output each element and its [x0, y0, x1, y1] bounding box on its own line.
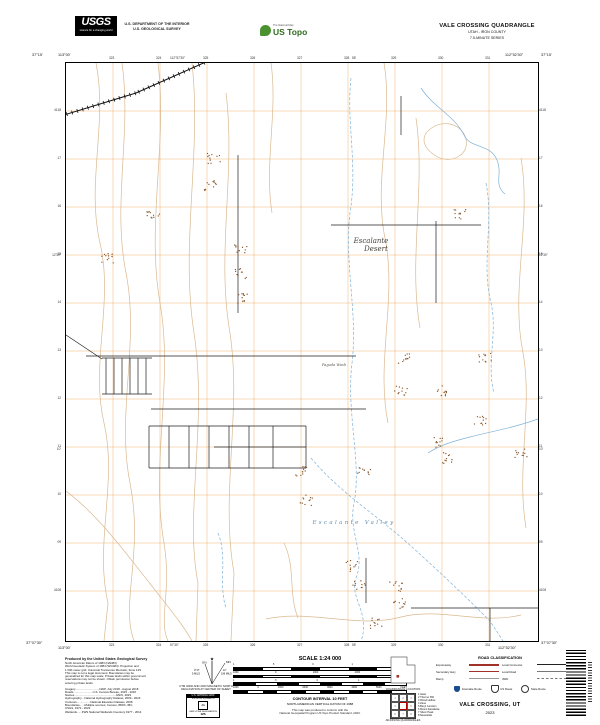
terrain-speck — [435, 442, 436, 443]
terrain-speck — [407, 358, 408, 359]
terrain-speck — [522, 452, 523, 453]
terrain-speck — [403, 359, 404, 360]
railroad-tick — [114, 98, 115, 102]
terrain-speck — [113, 262, 114, 263]
terrain-speck — [296, 475, 297, 476]
map-label: Pagoda Wash — [321, 363, 346, 367]
terrain-speck — [350, 569, 351, 570]
terrain-speck — [491, 359, 492, 360]
adjoining-quad-label: ADJOINING QUADRANGLES — [366, 719, 440, 722]
terrain-speck — [235, 271, 236, 272]
terrain-speck — [442, 462, 443, 463]
terrain-speck — [245, 278, 246, 279]
terrain-speck — [405, 601, 406, 602]
grid-tick-top: 328 — [344, 56, 349, 60]
terrain-speck — [437, 391, 438, 392]
map-label: Desert — [363, 245, 388, 253]
terrain-speck — [239, 269, 240, 270]
grid-tick-right: 13 — [539, 348, 543, 352]
terrain-speck — [241, 297, 242, 298]
graticule-label-top: 55' — [352, 56, 356, 60]
scale-bar-number: 0 — [258, 687, 259, 690]
terrain-speck — [210, 163, 211, 164]
usng-square-id: JG — [198, 701, 208, 710]
terrain-speck — [208, 184, 209, 185]
terrain-speck — [237, 250, 238, 251]
scale-bar-number: 1000 — [233, 687, 239, 690]
adjoining-cell: 8 — [407, 710, 415, 718]
terrain-speck — [349, 565, 350, 566]
terrain-speck — [482, 359, 483, 360]
terrain-speck — [211, 154, 212, 155]
terrain-speck — [401, 606, 402, 607]
terrain-speck — [409, 357, 410, 358]
scale-bar-segment — [320, 683, 342, 685]
graticule-label-bottom: 57'30" — [170, 643, 179, 647]
terrain-speck — [210, 159, 211, 160]
scale-bar-segment — [234, 683, 256, 685]
svg-text:MN: MN — [226, 660, 231, 664]
road-class-sample-expressway — [469, 664, 499, 666]
scale-bar-number: 0 — [275, 672, 276, 675]
grid-tick-left: 16 — [57, 204, 61, 208]
road-class-sample-ramp — [469, 678, 499, 679]
road-classification-legend: ROAD CLASSIFICATION ExpresswayLocal Conn… — [436, 656, 564, 693]
terrain-speck — [404, 604, 405, 605]
terrain-speck — [361, 587, 362, 588]
terrain-speck — [439, 441, 440, 442]
scale-bar-number: 1 — [233, 664, 234, 667]
terrain-speck — [159, 213, 160, 214]
contour-line — [225, 93, 234, 641]
road-class-label: Secondary Hwy — [436, 670, 466, 674]
terrain-speck — [355, 564, 356, 565]
quad-title: VALE CROSSING QUADRANGLE — [392, 23, 582, 29]
terrain-speck — [361, 584, 362, 585]
scale-bar-segment — [349, 691, 363, 693]
terrain-speck — [455, 209, 456, 210]
terrain-speck — [485, 418, 486, 419]
source-line: Wetlands......FWS National Wetlands Inve… — [65, 711, 193, 714]
terrain-speck — [394, 390, 395, 391]
department-heading: U.S. DEPARTMENT OF THE INTERIOR U.S. GEO… — [122, 22, 192, 31]
grid-tick-top: 329 — [391, 56, 396, 60]
terrain-speck — [111, 256, 112, 257]
graticule-label-left: 12'30" — [52, 253, 61, 257]
state-locator-map — [388, 654, 418, 686]
railroad-tick — [119, 96, 120, 100]
terrain-speck — [389, 581, 390, 582]
terrain-speck — [483, 354, 484, 355]
scale-bar-segment — [263, 676, 292, 678]
contour-line — [416, 118, 420, 328]
dept-line1: U.S. DEPARTMENT OF THE INTERIOR — [122, 22, 192, 27]
grid-tick-bottom: 327 — [297, 643, 302, 647]
terrain-speck — [350, 567, 351, 568]
terrain-speck — [438, 389, 439, 390]
terrain-speck — [514, 457, 515, 458]
terrain-speck — [446, 391, 447, 392]
contour-interval: CONTOUR INTERVAL 10 FEET — [233, 697, 407, 701]
terrain-speck — [465, 209, 466, 210]
terrain-speck — [370, 625, 371, 626]
terrain-speck — [364, 469, 365, 470]
terrain-speck — [300, 502, 301, 503]
quad-location-label: QUADRANGLE LOCATION — [366, 687, 440, 691]
terrain-speck — [358, 472, 359, 473]
terrain-speck — [435, 446, 436, 447]
scale-bar-number: 2000 — [355, 672, 361, 675]
terrain-speck — [445, 395, 446, 396]
terrain-speck — [309, 500, 310, 501]
terrain-speck — [393, 602, 394, 603]
terrain-speck — [443, 452, 444, 453]
terrain-speck — [236, 251, 237, 252]
scale-bar-number: 1 — [233, 680, 234, 683]
terrain-speck — [150, 212, 151, 213]
road-class-sample-connector — [537, 664, 567, 666]
terrain-speck — [524, 453, 525, 454]
declination-diagram: ★ GN MN 0°17' 5 MILS 11° 196 MILS — [190, 656, 236, 686]
terrain-speck — [362, 469, 363, 470]
terrain-speck — [523, 455, 524, 456]
terrain-speck — [242, 301, 243, 302]
road-class-label: Expressway — [436, 663, 466, 667]
terrain-speck — [241, 293, 242, 294]
terrain-speck — [357, 561, 358, 562]
terrain-speck — [442, 438, 443, 439]
terrain-speck — [442, 385, 443, 386]
usgs-tagline: science for a changing world — [75, 29, 117, 32]
terrain-speck — [101, 256, 102, 257]
road-class-label: Local Road — [502, 670, 534, 674]
terrain-speck — [399, 608, 400, 609]
scale-bar-number: 2000 — [302, 687, 308, 690]
terrain-speck — [208, 155, 209, 156]
map-title-block: VALE CROSSING, UT 2023 — [420, 702, 560, 715]
scale-bar-segment — [349, 676, 378, 678]
terrain-speck — [108, 258, 109, 259]
terrain-speck — [398, 590, 399, 591]
terrain-speck — [209, 157, 210, 158]
terrain-speck — [216, 156, 217, 157]
terrain-speck — [302, 466, 303, 467]
scale-bar-number: 1000 — [278, 687, 284, 690]
terrain-speck — [107, 253, 108, 254]
terrain-speck — [483, 420, 484, 421]
terrain-speck — [350, 571, 351, 572]
corner-tr-lat: 37°15' — [541, 53, 552, 57]
terrain-speck — [302, 497, 303, 498]
railroad-tick — [82, 107, 83, 111]
terrain-speck — [485, 423, 486, 424]
terrain-speck — [460, 218, 461, 219]
route-shield-item: Interstate Route — [454, 686, 481, 692]
contour-line — [121, 63, 135, 641]
grid-tick-right: 4118 — [539, 108, 546, 112]
grid-tick-bottom: 324 — [156, 643, 161, 647]
terrain-speck — [401, 390, 402, 391]
grid-tick-right: 17 — [539, 156, 543, 160]
terrain-speck — [517, 454, 518, 455]
terrain-speck — [357, 473, 358, 474]
stream-line — [218, 533, 226, 608]
grid-tick-left: 09 — [57, 540, 61, 544]
grid-tick-left: 14 — [57, 300, 61, 304]
terrain-speck — [306, 467, 307, 468]
scale-bar-segment — [234, 668, 263, 670]
terrain-speck — [404, 394, 405, 395]
usng-subtitle: 100,000-M SQUARE ID — [187, 698, 219, 701]
grid-tick-bottom: 323 — [109, 643, 114, 647]
terrain-speck — [436, 441, 437, 442]
svg-text:5 MILS: 5 MILS — [192, 672, 200, 675]
grid-tick-right: 4108 — [539, 588, 546, 592]
scale-bar-segment — [263, 668, 292, 670]
usgs-logo: USGS science for a changing world — [75, 16, 117, 36]
terrain-speck — [393, 585, 394, 586]
terrain-speck — [235, 269, 236, 270]
terrain-speck — [402, 598, 403, 599]
terrain-speck — [347, 561, 348, 562]
terrain-speck — [247, 294, 248, 295]
terrain-speck — [377, 619, 378, 620]
road-classification-title: ROAD CLASSIFICATION — [436, 656, 564, 660]
terrain-speck — [207, 153, 208, 154]
us-topo-map-sheet: USGS science for a changing world U.S. D… — [0, 0, 600, 725]
terrain-speck — [302, 473, 303, 474]
road-class-rows: ExpresswayLocal ConnectorSecondary HwyLo… — [436, 663, 564, 681]
grid-tick-top: 327 — [297, 56, 302, 60]
grid-tick-right: 16 — [539, 204, 543, 208]
terrain-speck — [483, 417, 484, 418]
route-shield-item: US Route — [491, 685, 513, 693]
stream-line — [428, 419, 538, 453]
grid-tick-right: 14 — [539, 300, 543, 304]
terrain-speck — [443, 392, 444, 393]
scale-bar — [233, 667, 407, 671]
terrain-speck — [449, 454, 450, 455]
terrain-speck — [526, 456, 527, 457]
terrain-speck — [300, 475, 301, 476]
terrain-speck — [244, 295, 245, 296]
terrain-speck — [459, 217, 460, 218]
grid-tick-top: 326 — [250, 56, 255, 60]
terrain-speck — [237, 275, 238, 276]
terrain-speck — [147, 215, 148, 216]
terrain-speck — [245, 249, 246, 250]
road-class-label: Local Connector — [502, 663, 534, 667]
map-frame: EscalanteDesertPagoda WashEscalante Vall… — [65, 62, 539, 642]
scale-bar-segment — [234, 691, 248, 693]
terrain-speck — [213, 186, 214, 187]
svg-text:★: ★ — [210, 657, 215, 662]
terrain-speck — [454, 209, 455, 210]
graticule-label-right: 12'30" — [539, 253, 548, 257]
quad-title-block: VALE CROSSING QUADRANGLE UTAH - IRON COU… — [392, 23, 582, 40]
road-class-label: 4WD — [502, 677, 534, 681]
terrain-speck — [440, 438, 441, 439]
terrain-speck — [441, 395, 442, 396]
corner-bl-lon: 113°00' — [58, 646, 71, 650]
terrain-speck — [443, 463, 444, 464]
terrain-speck — [445, 460, 446, 461]
terrain-speck — [396, 386, 397, 387]
grid-tick-bottom: 325 — [203, 643, 208, 647]
scale-bar-number: 3000 — [327, 687, 333, 690]
railroad-tick — [77, 109, 78, 113]
terrain-speck — [305, 470, 306, 471]
scale-bar-number: 1000 — [313, 672, 319, 675]
scale-bar-number: 1000 — [233, 672, 239, 675]
terrain-speck — [485, 361, 486, 362]
vertical-datum: NORTH AMERICAN VERTICAL DATUM OF 1988 — [233, 702, 407, 706]
terrain-speck — [479, 361, 480, 362]
terrain-speck — [354, 585, 355, 586]
terrain-speck — [478, 354, 479, 355]
adjoining-cell: 1 — [391, 694, 399, 702]
terrain-speck — [398, 392, 399, 393]
terrain-speck — [482, 416, 483, 417]
railroad-tick — [93, 104, 94, 108]
quad-location-marker — [397, 675, 400, 678]
quad-series: 7.5-MINUTE SERIES — [392, 36, 582, 40]
terrain-speck — [246, 246, 247, 247]
terrain-speck — [477, 416, 478, 417]
terrain-speck — [214, 182, 215, 183]
terrain-speck — [460, 213, 461, 214]
terrain-speck — [398, 363, 399, 364]
contour-line — [66, 491, 192, 641]
us-topo-brand: US Topo — [273, 28, 307, 36]
terrain-speck — [438, 444, 439, 445]
terrain-speck — [370, 628, 371, 629]
scale-title: SCALE 1:24 000 — [233, 656, 407, 662]
grid-tick-bottom: 328 — [344, 643, 349, 647]
usng-box: U.S. NATIONAL GRID 100,000-M SQUARE ID J… — [186, 694, 220, 718]
graticule-label-bottom: 55' — [352, 643, 356, 647]
terrain-speck — [219, 155, 220, 156]
adjoining-cell: 4 — [391, 702, 399, 710]
scale-bar-segment — [342, 683, 364, 685]
usgs-wordmark: USGS — [75, 16, 117, 29]
terrain-speck — [440, 445, 441, 446]
scale-bar-segment — [349, 668, 378, 670]
corner-bl-lat: 37°07'30" — [26, 641, 42, 645]
scale-bar-segment — [277, 683, 299, 685]
contour-line — [519, 158, 527, 528]
terrain-speck — [434, 437, 435, 438]
terrain-speck — [484, 355, 485, 356]
adjoining-cell: 5 — [407, 702, 415, 710]
grid-tick-top: 323 — [109, 56, 114, 60]
source-lines: Imagery..............................NAI… — [65, 688, 193, 714]
terrain-speck — [482, 424, 483, 425]
terrain-speck — [237, 246, 238, 247]
terrain-speck — [360, 580, 361, 581]
stream-line — [348, 78, 363, 641]
route-shield-label: State Route — [531, 687, 546, 691]
scale-bar-segment — [291, 668, 320, 670]
terrain-speck — [368, 474, 369, 475]
contour-line — [155, 63, 168, 641]
grid-tick-right: 10 — [539, 492, 543, 496]
route-shield-item: State Route — [521, 685, 545, 693]
terrain-speck — [242, 271, 243, 272]
adjoining-cell: 3 — [407, 694, 415, 702]
terrain-speck — [402, 583, 403, 584]
terrain-speck — [364, 583, 365, 584]
terrain-speck — [359, 467, 360, 468]
grid-tick-top: 330 — [438, 56, 443, 60]
scale-bar-segment — [363, 691, 377, 693]
terrain-speck — [243, 293, 244, 294]
terrain-speck — [234, 244, 235, 245]
terrain-speck — [395, 581, 396, 582]
terrain-speck — [445, 391, 446, 392]
route-shields: Interstate RouteUS RouteState Route — [436, 685, 564, 693]
terrain-speck — [310, 497, 311, 498]
terrain-speck — [151, 217, 152, 218]
contour-line — [269, 63, 273, 213]
scale-bar-segment — [320, 691, 334, 693]
terrain-speck — [354, 581, 355, 582]
map-year: 2023 — [420, 710, 560, 715]
terrain-speck — [146, 211, 147, 212]
scale-bar-number: .5 — [272, 664, 274, 667]
terrain-speck — [236, 274, 237, 275]
terrain-speck — [367, 471, 368, 472]
road-line — [66, 335, 102, 359]
scale-bar-segment — [263, 691, 277, 693]
terrain-speck — [244, 252, 245, 253]
railroad-tick — [98, 103, 99, 107]
scale-bar-segment — [277, 691, 291, 693]
scale-bar-segment — [256, 683, 278, 685]
terrain-speck — [405, 392, 406, 393]
us-topo-leaf-icon — [260, 25, 271, 36]
graticule-label-top: 112°57'30" — [170, 56, 185, 60]
terrain-speck — [458, 213, 459, 214]
terrain-speck — [516, 452, 517, 453]
terrain-speck — [153, 215, 154, 216]
map-canvas: EscalanteDesertPagoda WashEscalante Vall… — [66, 63, 538, 641]
grid-tick-left: 13 — [57, 348, 61, 352]
map-label: Escalante Valley — [311, 520, 395, 526]
contour-line — [266, 614, 521, 621]
scale-bar-number: 0 — [312, 664, 313, 667]
terrain-speck — [446, 458, 447, 459]
terrain-speck — [346, 562, 347, 563]
quad-state: UTAH - IRON COUNTY — [392, 30, 582, 34]
terrain-speck — [238, 294, 239, 295]
contour-line — [284, 543, 298, 618]
terrain-speck — [406, 388, 407, 389]
terrain-speck — [295, 474, 296, 475]
terrain-speck — [405, 355, 406, 356]
terrain-speck — [371, 620, 372, 621]
terrain-speck — [304, 504, 305, 505]
state-shield-icon — [521, 685, 529, 693]
terrain-speck — [311, 505, 312, 506]
us-topo-logo: The National Map US Topo — [260, 24, 307, 36]
terrain-speck — [398, 585, 399, 586]
terrain-speck — [242, 247, 243, 248]
stream-line — [421, 88, 505, 194]
terrain-speck — [352, 584, 353, 585]
railroad-tick — [129, 93, 130, 97]
terrain-speck — [441, 440, 442, 441]
